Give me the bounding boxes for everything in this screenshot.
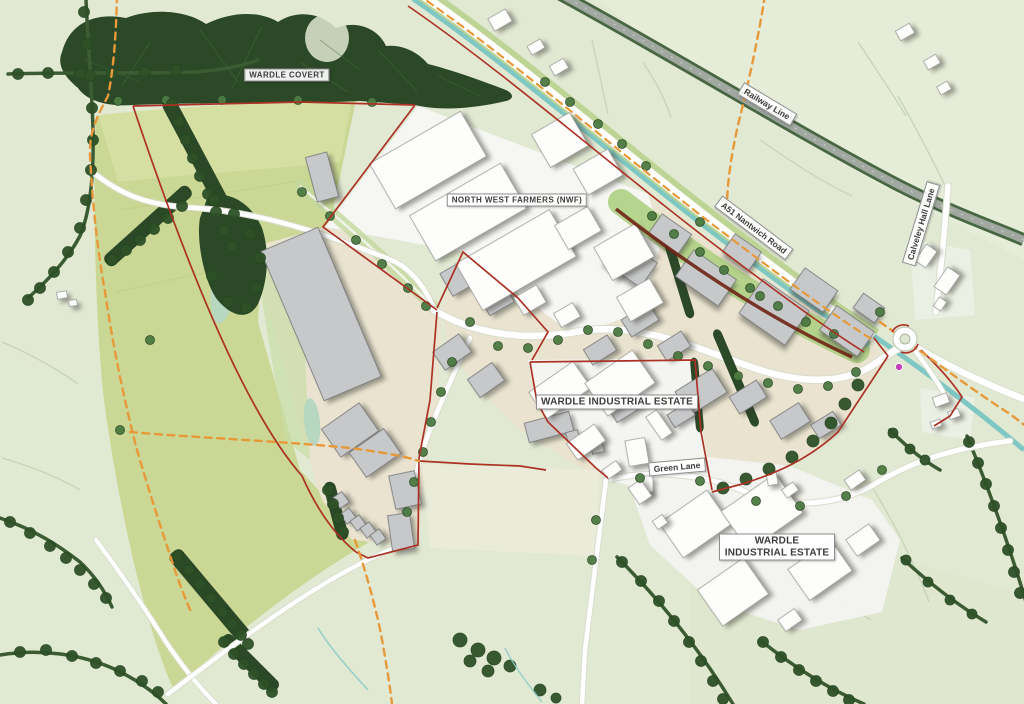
masterplan-map: WARDLE COVERT NORTH WEST FARMERS (NWF) R… bbox=[0, 0, 1024, 704]
label-wardle-industrial-south: WARDLE INDUSTRIAL ESTATE bbox=[719, 534, 835, 561]
existing-building bbox=[56, 291, 67, 300]
site-plan-canvas bbox=[0, 0, 1024, 704]
access-marker bbox=[896, 364, 903, 371]
existing-building bbox=[69, 299, 78, 306]
label-north-west-farmers: NORTH WEST FARMERS (NWF) bbox=[447, 194, 587, 207]
existing-building bbox=[625, 437, 649, 466]
label-wardle-covert: WARDLE COVERT bbox=[244, 69, 329, 82]
label-wardle-industrial-north: WARDLE INDUSTRIAL ESTATE bbox=[536, 395, 698, 410]
proposed-building bbox=[388, 513, 415, 552]
